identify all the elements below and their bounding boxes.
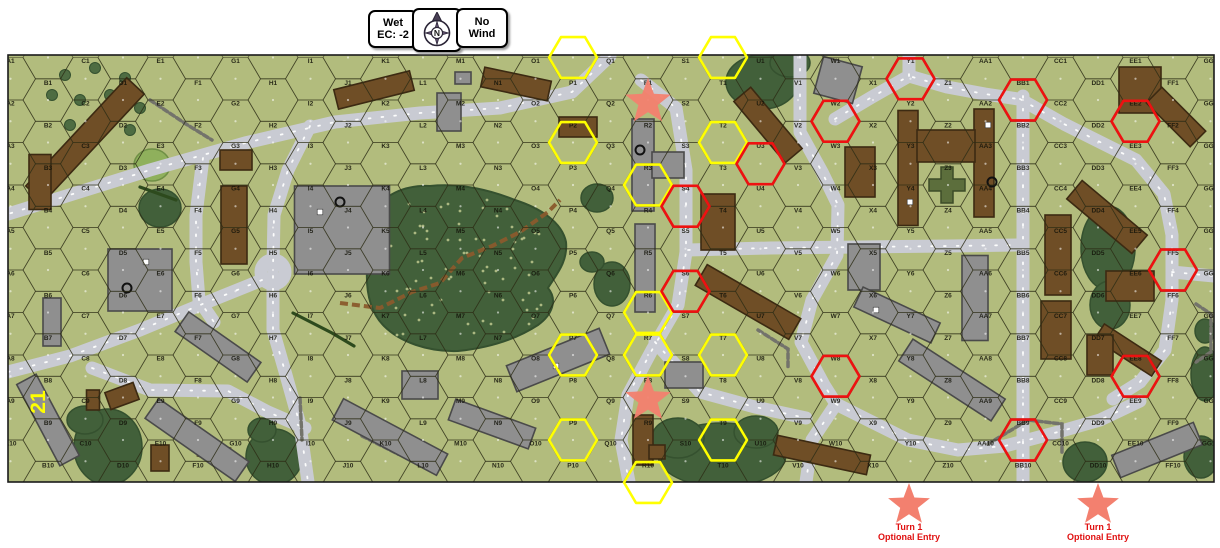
svg-text:R4: R4 xyxy=(644,208,653,215)
svg-text:Q4: Q4 xyxy=(606,186,615,193)
svg-text:Z1: Z1 xyxy=(944,80,952,87)
svg-text:D9: D9 xyxy=(119,420,128,427)
svg-text:E7: E7 xyxy=(157,313,165,320)
svg-text:F8: F8 xyxy=(194,378,202,385)
svg-text:B4: B4 xyxy=(44,208,53,215)
svg-text:L5: L5 xyxy=(419,250,427,257)
svg-text:P7: P7 xyxy=(569,335,577,342)
svg-text:V8: V8 xyxy=(794,378,802,385)
svg-text:D7: D7 xyxy=(119,335,128,342)
vasl-map-window: A1A2A3A4A5A6A7A8A9A10B1B2B3B4B5B6B7B8B9B… xyxy=(0,0,1220,548)
svg-text:I7: I7 xyxy=(308,313,314,320)
svg-text:FF4: FF4 xyxy=(1167,208,1179,215)
svg-text:K9: K9 xyxy=(381,398,390,405)
entry-star-icon[interactable] xyxy=(888,483,930,523)
svg-text:O2: O2 xyxy=(531,101,540,108)
svg-text:E5: E5 xyxy=(157,228,165,235)
svg-text:G2: G2 xyxy=(231,101,240,108)
svg-text:CC9: CC9 xyxy=(1054,398,1067,405)
entry-label-line2: Optional Entry xyxy=(1067,532,1129,542)
weather-line2: EC: -2 xyxy=(377,29,409,41)
svg-text:D1: D1 xyxy=(119,80,128,87)
svg-text:J3: J3 xyxy=(344,165,352,172)
svg-text:GG3: GG3 xyxy=(1204,143,1218,150)
svg-text:C7: C7 xyxy=(81,313,90,320)
svg-text:M10: M10 xyxy=(454,441,467,448)
svg-text:V5: V5 xyxy=(794,250,802,257)
svg-text:Y7: Y7 xyxy=(907,313,915,320)
svg-text:C3: C3 xyxy=(81,143,90,150)
svg-text:E10: E10 xyxy=(155,441,167,448)
svg-text:AA6: AA6 xyxy=(979,271,992,278)
turn1-entry-marker[interactable]: Turn 1Optional Entry xyxy=(1067,483,1129,542)
svg-text:T5: T5 xyxy=(719,250,727,257)
svg-text:J4: J4 xyxy=(344,208,352,215)
svg-text:I1: I1 xyxy=(308,58,314,65)
svg-text:F6: F6 xyxy=(194,293,202,300)
wind-button[interactable]: No Wind xyxy=(456,8,508,48)
svg-text:H5: H5 xyxy=(269,250,278,257)
svg-text:D6: D6 xyxy=(119,293,128,300)
svg-text:E4: E4 xyxy=(157,186,165,193)
svg-text:I10: I10 xyxy=(306,441,315,448)
svg-text:F10: F10 xyxy=(192,463,204,470)
svg-text:N2: N2 xyxy=(494,123,503,130)
svg-text:GG4: GG4 xyxy=(1204,186,1218,193)
svg-text:FF10: FF10 xyxy=(1165,463,1181,470)
svg-text:L10: L10 xyxy=(417,463,429,470)
weather-line1: Wet xyxy=(383,17,403,29)
svg-text:O10: O10 xyxy=(529,441,542,448)
svg-text:C1: C1 xyxy=(81,58,90,65)
svg-text:GG10: GG10 xyxy=(1202,441,1220,448)
svg-text:GG2: GG2 xyxy=(1204,101,1218,108)
svg-text:AA10: AA10 xyxy=(977,441,994,448)
svg-text:T3: T3 xyxy=(719,165,727,172)
svg-text:V2: V2 xyxy=(794,123,802,130)
svg-text:Z10: Z10 xyxy=(942,463,954,470)
svg-text:N9: N9 xyxy=(494,420,503,427)
svg-text:FF2: FF2 xyxy=(1167,123,1179,130)
svg-text:W10: W10 xyxy=(829,441,843,448)
svg-text:F2: F2 xyxy=(194,123,202,130)
svg-text:CC5: CC5 xyxy=(1054,228,1067,235)
svg-text:Y8: Y8 xyxy=(907,356,915,363)
svg-text:C4: C4 xyxy=(81,186,90,193)
svg-text:Y10: Y10 xyxy=(905,441,917,448)
svg-text:M5: M5 xyxy=(456,228,465,235)
svg-text:W7: W7 xyxy=(831,313,841,320)
svg-text:L4: L4 xyxy=(419,208,427,215)
svg-text:W5: W5 xyxy=(831,228,841,235)
svg-text:I5: I5 xyxy=(308,228,314,235)
svg-text:I4: I4 xyxy=(308,186,314,193)
svg-text:N1: N1 xyxy=(494,80,503,87)
svg-text:U7: U7 xyxy=(756,313,765,320)
svg-text:DD8: DD8 xyxy=(1091,378,1104,385)
entry-label-line2: Optional Entry xyxy=(878,532,940,542)
svg-text:K6: K6 xyxy=(381,271,390,278)
svg-text:U5: U5 xyxy=(756,228,765,235)
svg-text:D10: D10 xyxy=(117,463,129,470)
svg-text:DD2: DD2 xyxy=(1091,123,1104,130)
svg-text:B7: B7 xyxy=(44,335,53,342)
svg-text:J9: J9 xyxy=(344,420,352,427)
svg-text:F7: F7 xyxy=(194,335,202,342)
svg-text:AA1: AA1 xyxy=(979,58,992,65)
svg-text:K2: K2 xyxy=(381,101,390,108)
svg-text:FF7: FF7 xyxy=(1167,335,1179,342)
svg-text:H2: H2 xyxy=(269,123,278,130)
svg-text:W1: W1 xyxy=(831,58,841,65)
svg-text:D2: D2 xyxy=(119,123,128,130)
svg-text:BB3: BB3 xyxy=(1016,165,1029,172)
svg-text:N10: N10 xyxy=(492,463,504,470)
svg-text:Y5: Y5 xyxy=(907,228,915,235)
svg-text:AA4: AA4 xyxy=(979,186,992,193)
svg-text:T1: T1 xyxy=(719,80,727,87)
svg-text:O6: O6 xyxy=(531,271,540,278)
svg-text:X10: X10 xyxy=(867,463,879,470)
svg-text:BB1: BB1 xyxy=(1016,80,1029,87)
svg-text:B2: B2 xyxy=(44,123,53,130)
svg-text:J7: J7 xyxy=(344,335,352,342)
svg-text:C2: C2 xyxy=(81,101,90,108)
svg-text:H8: H8 xyxy=(269,378,278,385)
svg-text:T2: T2 xyxy=(719,123,727,130)
svg-text:F3: F3 xyxy=(194,165,202,172)
svg-text:U8: U8 xyxy=(756,356,765,363)
svg-text:CC7: CC7 xyxy=(1054,313,1067,320)
svg-text:G3: G3 xyxy=(231,143,240,150)
svg-text:W9: W9 xyxy=(831,398,841,405)
svg-text:L9: L9 xyxy=(419,420,427,427)
svg-text:P2: P2 xyxy=(569,123,577,130)
svg-text:X2: X2 xyxy=(869,123,877,130)
svg-text:BB8: BB8 xyxy=(1016,378,1029,385)
svg-text:S7: S7 xyxy=(682,313,690,320)
svg-text:CC1: CC1 xyxy=(1054,58,1067,65)
svg-text:U1: U1 xyxy=(756,58,765,65)
svg-text:P10: P10 xyxy=(567,463,579,470)
svg-text:S1: S1 xyxy=(682,58,690,65)
svg-text:Y9: Y9 xyxy=(907,398,915,405)
svg-text:G7: G7 xyxy=(231,313,240,320)
svg-text:W3: W3 xyxy=(831,143,841,150)
svg-text:BB10: BB10 xyxy=(1015,463,1032,470)
svg-text:GG7: GG7 xyxy=(1204,313,1218,320)
svg-text:J10: J10 xyxy=(343,463,354,470)
svg-text:C6: C6 xyxy=(81,271,90,278)
svg-text:C5: C5 xyxy=(81,228,90,235)
svg-text:Y2: Y2 xyxy=(907,101,915,108)
svg-text:EE10: EE10 xyxy=(1128,441,1144,448)
svg-text:Q1: Q1 xyxy=(606,58,615,65)
svg-text:M9: M9 xyxy=(456,398,465,405)
svg-text:X9: X9 xyxy=(869,420,877,427)
svg-text:N4: N4 xyxy=(494,208,503,215)
svg-text:I3: I3 xyxy=(308,143,314,150)
svg-text:DD6: DD6 xyxy=(1091,293,1104,300)
svg-text:U6: U6 xyxy=(756,271,765,278)
svg-text:Y4: Y4 xyxy=(907,186,915,193)
svg-text:J8: J8 xyxy=(344,378,352,385)
svg-text:DD3: DD3 xyxy=(1091,165,1104,172)
svg-text:T9: T9 xyxy=(719,420,727,427)
svg-text:V9: V9 xyxy=(794,420,802,427)
svg-text:H7: H7 xyxy=(269,335,278,342)
svg-text:DD1: DD1 xyxy=(1091,80,1104,87)
svg-text:G5: G5 xyxy=(231,228,240,235)
svg-text:K1: K1 xyxy=(381,58,390,65)
svg-text:P9: P9 xyxy=(569,420,577,427)
svg-text:V10: V10 xyxy=(792,463,804,470)
svg-text:G6: G6 xyxy=(231,271,240,278)
svg-text:F9: F9 xyxy=(194,420,202,427)
svg-text:EE7: EE7 xyxy=(1129,313,1142,320)
svg-text:H4: H4 xyxy=(269,208,278,215)
svg-text:GG6: GG6 xyxy=(1204,271,1218,278)
svg-text:K4: K4 xyxy=(381,186,390,193)
svg-text:B6: B6 xyxy=(44,293,53,300)
svg-text:G4: G4 xyxy=(231,186,240,193)
svg-text:I9: I9 xyxy=(308,398,314,405)
svg-text:V3: V3 xyxy=(794,165,802,172)
svg-text:FF9: FF9 xyxy=(1167,420,1179,427)
svg-text:H10: H10 xyxy=(267,463,279,470)
svg-text:S8: S8 xyxy=(682,356,690,363)
svg-text:FF8: FF8 xyxy=(1167,378,1179,385)
svg-text:L1: L1 xyxy=(419,80,427,87)
svg-text:H9: H9 xyxy=(269,420,278,427)
svg-text:T4: T4 xyxy=(719,208,727,215)
svg-text:BB5: BB5 xyxy=(1016,250,1029,257)
weather-button[interactable]: Wet EC: -2 xyxy=(368,10,418,48)
svg-text:N8: N8 xyxy=(494,378,503,385)
svg-text:B1: B1 xyxy=(44,80,53,87)
board-21-map[interactable]: A1A2A3A4A5A6A7A8A9A10B1B2B3B4B5B6B7B8B9B… xyxy=(0,0,1220,548)
svg-text:C8: C8 xyxy=(81,356,90,363)
svg-text:R10: R10 xyxy=(642,463,654,470)
svg-text:J1: J1 xyxy=(344,80,352,87)
svg-text:Z2: Z2 xyxy=(944,123,952,130)
svg-text:S10: S10 xyxy=(680,441,692,448)
svg-text:H3: H3 xyxy=(269,165,278,172)
svg-text:Z3: Z3 xyxy=(944,165,952,172)
svg-text:L3: L3 xyxy=(419,165,427,172)
svg-text:W6: W6 xyxy=(831,271,841,278)
svg-text:L2: L2 xyxy=(419,123,427,130)
svg-text:Z4: Z4 xyxy=(944,208,952,215)
svg-text:AA2: AA2 xyxy=(979,101,992,108)
svg-text:V1: V1 xyxy=(794,80,802,87)
svg-text:DD5: DD5 xyxy=(1091,250,1104,257)
svg-text:E3: E3 xyxy=(157,143,165,150)
svg-text:BB7: BB7 xyxy=(1016,335,1029,342)
svg-text:C10: C10 xyxy=(80,441,92,448)
svg-text:BB6: BB6 xyxy=(1016,293,1029,300)
svg-text:BB2: BB2 xyxy=(1016,123,1029,130)
svg-text:K8: K8 xyxy=(381,356,390,363)
entry-star-icon[interactable] xyxy=(1077,483,1119,523)
entry-label-line1: Turn 1 xyxy=(1085,522,1112,532)
svg-text:X8: X8 xyxy=(869,378,877,385)
svg-text:L8: L8 xyxy=(419,378,427,385)
svg-text:FF5: FF5 xyxy=(1167,250,1179,257)
svg-text:O1: O1 xyxy=(531,58,540,65)
svg-text:BB9: BB9 xyxy=(1016,420,1029,427)
svg-text:FF3: FF3 xyxy=(1167,165,1179,172)
svg-text:K3: K3 xyxy=(381,143,390,150)
svg-text:Z9: Z9 xyxy=(944,420,952,427)
svg-text:F4: F4 xyxy=(194,208,202,215)
svg-text:A10: A10 xyxy=(5,441,17,448)
svg-text:Q8: Q8 xyxy=(606,356,615,363)
svg-text:V4: V4 xyxy=(794,208,802,215)
svg-text:Y3: Y3 xyxy=(907,143,915,150)
svg-text:M7: M7 xyxy=(456,313,465,320)
svg-text:D4: D4 xyxy=(119,208,128,215)
entry-label-line1: Turn 1 xyxy=(896,522,923,532)
svg-text:X6: X6 xyxy=(869,293,877,300)
svg-text:P5: P5 xyxy=(569,250,577,257)
svg-text:M4: M4 xyxy=(456,186,465,193)
svg-text:D8: D8 xyxy=(119,378,128,385)
svg-text:CC8: CC8 xyxy=(1054,356,1067,363)
svg-text:EE1: EE1 xyxy=(1129,58,1142,65)
svg-text:X5: X5 xyxy=(869,250,877,257)
svg-text:O4: O4 xyxy=(531,186,540,193)
svg-text:P1: P1 xyxy=(569,80,577,87)
svg-text:Q7: Q7 xyxy=(606,313,615,320)
svg-text:J2: J2 xyxy=(344,123,352,130)
svg-text:Y6: Y6 xyxy=(907,271,915,278)
svg-text:AA7: AA7 xyxy=(979,313,992,320)
svg-text:EE9: EE9 xyxy=(1129,398,1142,405)
svg-text:O8: O8 xyxy=(531,356,540,363)
svg-text:I2: I2 xyxy=(308,101,314,108)
svg-text:C9: C9 xyxy=(81,398,90,405)
svg-text:L6: L6 xyxy=(419,293,427,300)
svg-text:Q5: Q5 xyxy=(606,228,615,235)
svg-text:H6: H6 xyxy=(269,293,278,300)
svg-text:B3: B3 xyxy=(44,165,53,172)
board-number: 21 xyxy=(27,390,50,414)
svg-text:AA5: AA5 xyxy=(979,228,992,235)
svg-text:I6: I6 xyxy=(308,271,314,278)
turn1-entry-marker[interactable]: Turn 1Optional Entry xyxy=(878,483,940,542)
svg-text:Z7: Z7 xyxy=(944,335,952,342)
svg-text:EE4: EE4 xyxy=(1129,186,1142,193)
svg-text:EE5: EE5 xyxy=(1129,228,1142,235)
svg-text:J5: J5 xyxy=(344,250,352,257)
svg-text:T8: T8 xyxy=(719,378,727,385)
svg-text:N5: N5 xyxy=(494,250,503,257)
svg-text:B5: B5 xyxy=(44,250,53,257)
wind-line1: No xyxy=(475,16,490,28)
svg-text:S5: S5 xyxy=(682,228,690,235)
svg-text:S3: S3 xyxy=(682,143,690,150)
svg-text:FF6: FF6 xyxy=(1167,293,1179,300)
svg-text:GG1: GG1 xyxy=(1204,58,1218,65)
svg-text:K5: K5 xyxy=(381,228,390,235)
svg-text:D5: D5 xyxy=(119,250,128,257)
svg-text:I8: I8 xyxy=(308,356,314,363)
svg-text:L7: L7 xyxy=(419,335,427,342)
svg-text:V7: V7 xyxy=(794,335,802,342)
svg-text:E1: E1 xyxy=(157,58,165,65)
svg-text:DD10: DD10 xyxy=(1090,463,1107,470)
svg-text:W4: W4 xyxy=(831,186,841,193)
svg-text:M6: M6 xyxy=(456,271,465,278)
svg-text:S9: S9 xyxy=(682,398,690,405)
svg-text:AA3: AA3 xyxy=(979,143,992,150)
svg-text:Q2: Q2 xyxy=(606,101,615,108)
svg-text:Q6: Q6 xyxy=(606,271,615,278)
svg-text:N6: N6 xyxy=(494,293,503,300)
svg-text:T6: T6 xyxy=(719,293,727,300)
svg-text:X7: X7 xyxy=(869,335,877,342)
svg-text:GG9: GG9 xyxy=(1204,398,1218,405)
svg-text:K7: K7 xyxy=(381,313,390,320)
svg-text:BB4: BB4 xyxy=(1016,208,1029,215)
svg-text:AA9: AA9 xyxy=(979,398,992,405)
svg-text:GG8: GG8 xyxy=(1204,356,1218,363)
svg-text:U4: U4 xyxy=(756,186,765,193)
svg-text:R7: R7 xyxy=(644,335,653,342)
svg-text:EE6: EE6 xyxy=(1129,271,1142,278)
svg-text:G10: G10 xyxy=(229,441,242,448)
svg-text:P8: P8 xyxy=(569,378,577,385)
svg-text:Q3: Q3 xyxy=(606,143,615,150)
svg-text:E8: E8 xyxy=(157,356,165,363)
svg-text:R9: R9 xyxy=(644,420,653,427)
svg-text:U9: U9 xyxy=(756,398,765,405)
svg-text:U10: U10 xyxy=(755,441,767,448)
svg-text:G9: G9 xyxy=(231,398,240,405)
compass-button[interactable]: N xyxy=(412,8,462,52)
svg-text:Z6: Z6 xyxy=(944,293,952,300)
svg-text:R5: R5 xyxy=(644,250,653,257)
svg-text:K10: K10 xyxy=(380,441,392,448)
svg-text:H1: H1 xyxy=(269,80,278,87)
svg-text:CC6: CC6 xyxy=(1054,271,1067,278)
svg-text:X1: X1 xyxy=(869,80,877,87)
svg-text:DD9: DD9 xyxy=(1091,420,1104,427)
svg-text:CC2: CC2 xyxy=(1054,101,1067,108)
svg-text:P3: P3 xyxy=(569,165,577,172)
svg-text:DD4: DD4 xyxy=(1091,208,1104,215)
svg-text:G1: G1 xyxy=(231,58,240,65)
svg-text:Z5: Z5 xyxy=(944,250,952,257)
compass-icon: N xyxy=(420,12,454,48)
svg-text:X4: X4 xyxy=(869,208,877,215)
svg-text:N7: N7 xyxy=(494,335,503,342)
svg-text:J6: J6 xyxy=(344,293,352,300)
svg-text:CC10: CC10 xyxy=(1052,441,1069,448)
wind-line2: Wind xyxy=(469,28,496,40)
svg-text:E9: E9 xyxy=(157,398,165,405)
svg-text:CC4: CC4 xyxy=(1054,186,1067,193)
svg-text:GG5: GG5 xyxy=(1204,228,1218,235)
svg-text:U2: U2 xyxy=(756,101,765,108)
svg-text:DD7: DD7 xyxy=(1091,335,1104,342)
svg-text:X3: X3 xyxy=(869,165,877,172)
svg-text:M8: M8 xyxy=(456,356,465,363)
svg-text:O5: O5 xyxy=(531,228,540,235)
svg-text:CC3: CC3 xyxy=(1054,143,1067,150)
svg-text:R6: R6 xyxy=(644,293,653,300)
